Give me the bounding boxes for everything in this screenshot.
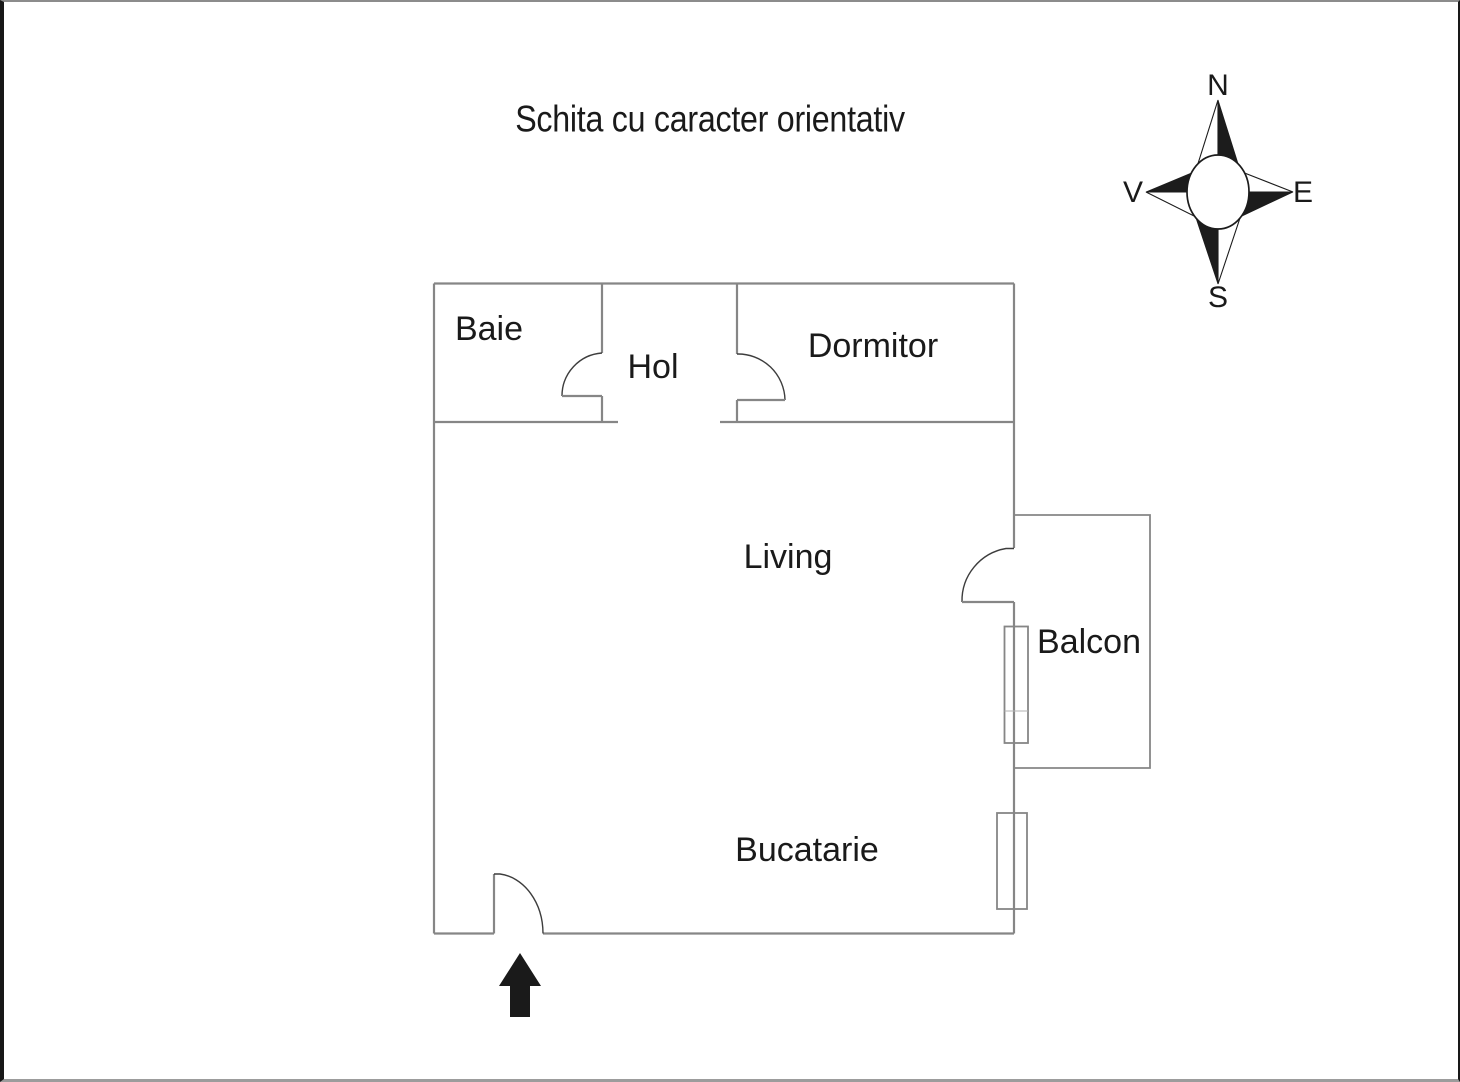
living-balcon-window [1005, 627, 1029, 744]
room-label-baie: Baie [455, 312, 523, 346]
balcon-door-arc [962, 549, 1014, 603]
compass-label-north: N [1207, 71, 1229, 101]
room-label-hol: Hol [627, 350, 678, 384]
page-title: Schita cu caracter orientativ [515, 101, 905, 138]
entrance-door-arc [494, 874, 543, 934]
room-label-bucatarie: Bucatarie [735, 833, 879, 867]
compass-label-west: V [1123, 178, 1143, 208]
room-label-living: Living [744, 540, 833, 574]
room-label-dormitor: Dormitor [808, 329, 938, 363]
dormitor-door-arc [737, 354, 785, 400]
bucatarie-window [997, 813, 1027, 909]
baie-door-arc [562, 353, 602, 396]
compass-circle [1187, 155, 1249, 229]
compass-rose-icon [1146, 100, 1293, 284]
outer-walls [434, 284, 1014, 934]
compass-label-east: E [1293, 178, 1313, 208]
compass-label-south: S [1208, 283, 1228, 313]
floor-plan-drawing [0, 0, 1460, 1082]
entrance-arrow-icon [499, 953, 541, 1017]
room-label-balcon: Balcon [1037, 625, 1141, 659]
